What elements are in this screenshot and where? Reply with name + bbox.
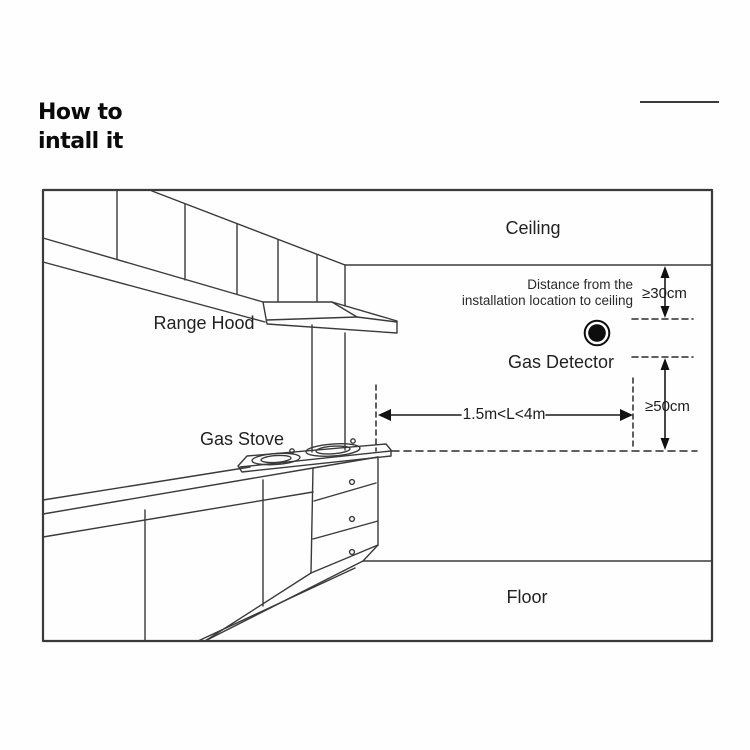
ceiling-distance-note: Distance from the installation location …: [462, 277, 633, 308]
reference-dashed-lines: [376, 319, 697, 451]
drawer-knob: [350, 517, 355, 522]
drawer-knob: [350, 550, 355, 555]
floor-label: Floor: [506, 587, 547, 608]
ceiling-label: Ceiling: [505, 218, 560, 239]
install-diagram-page: How to intall it: [0, 0, 750, 750]
counter-drawing: [43, 467, 313, 641]
drawer-knob: [350, 480, 355, 485]
drawer-unit: [198, 457, 378, 641]
hood-duct: [312, 325, 345, 452]
ceiling-distance-note-line2: installation location to ceiling: [462, 293, 633, 309]
gas-stove-label: Gas Stove: [200, 429, 284, 450]
dimension-stove-clearance: ≥50cm: [645, 398, 690, 415]
range-hood-drawing: [263, 302, 397, 333]
ceiling-distance-note-line1: Distance from the: [462, 277, 633, 293]
dimension-ceiling-clearance: ≥30cm: [642, 285, 687, 302]
gas-detector-label: Gas Detector: [508, 352, 614, 373]
kitchen-line-art: [0, 0, 750, 750]
stove-knob: [290, 449, 294, 453]
range-hood-label: Range Hood: [153, 313, 254, 334]
stove-knob: [351, 439, 355, 443]
dimension-horizontal-range: 1.5m<L<4m: [463, 406, 546, 424]
gas-detector-icon: [585, 321, 610, 346]
